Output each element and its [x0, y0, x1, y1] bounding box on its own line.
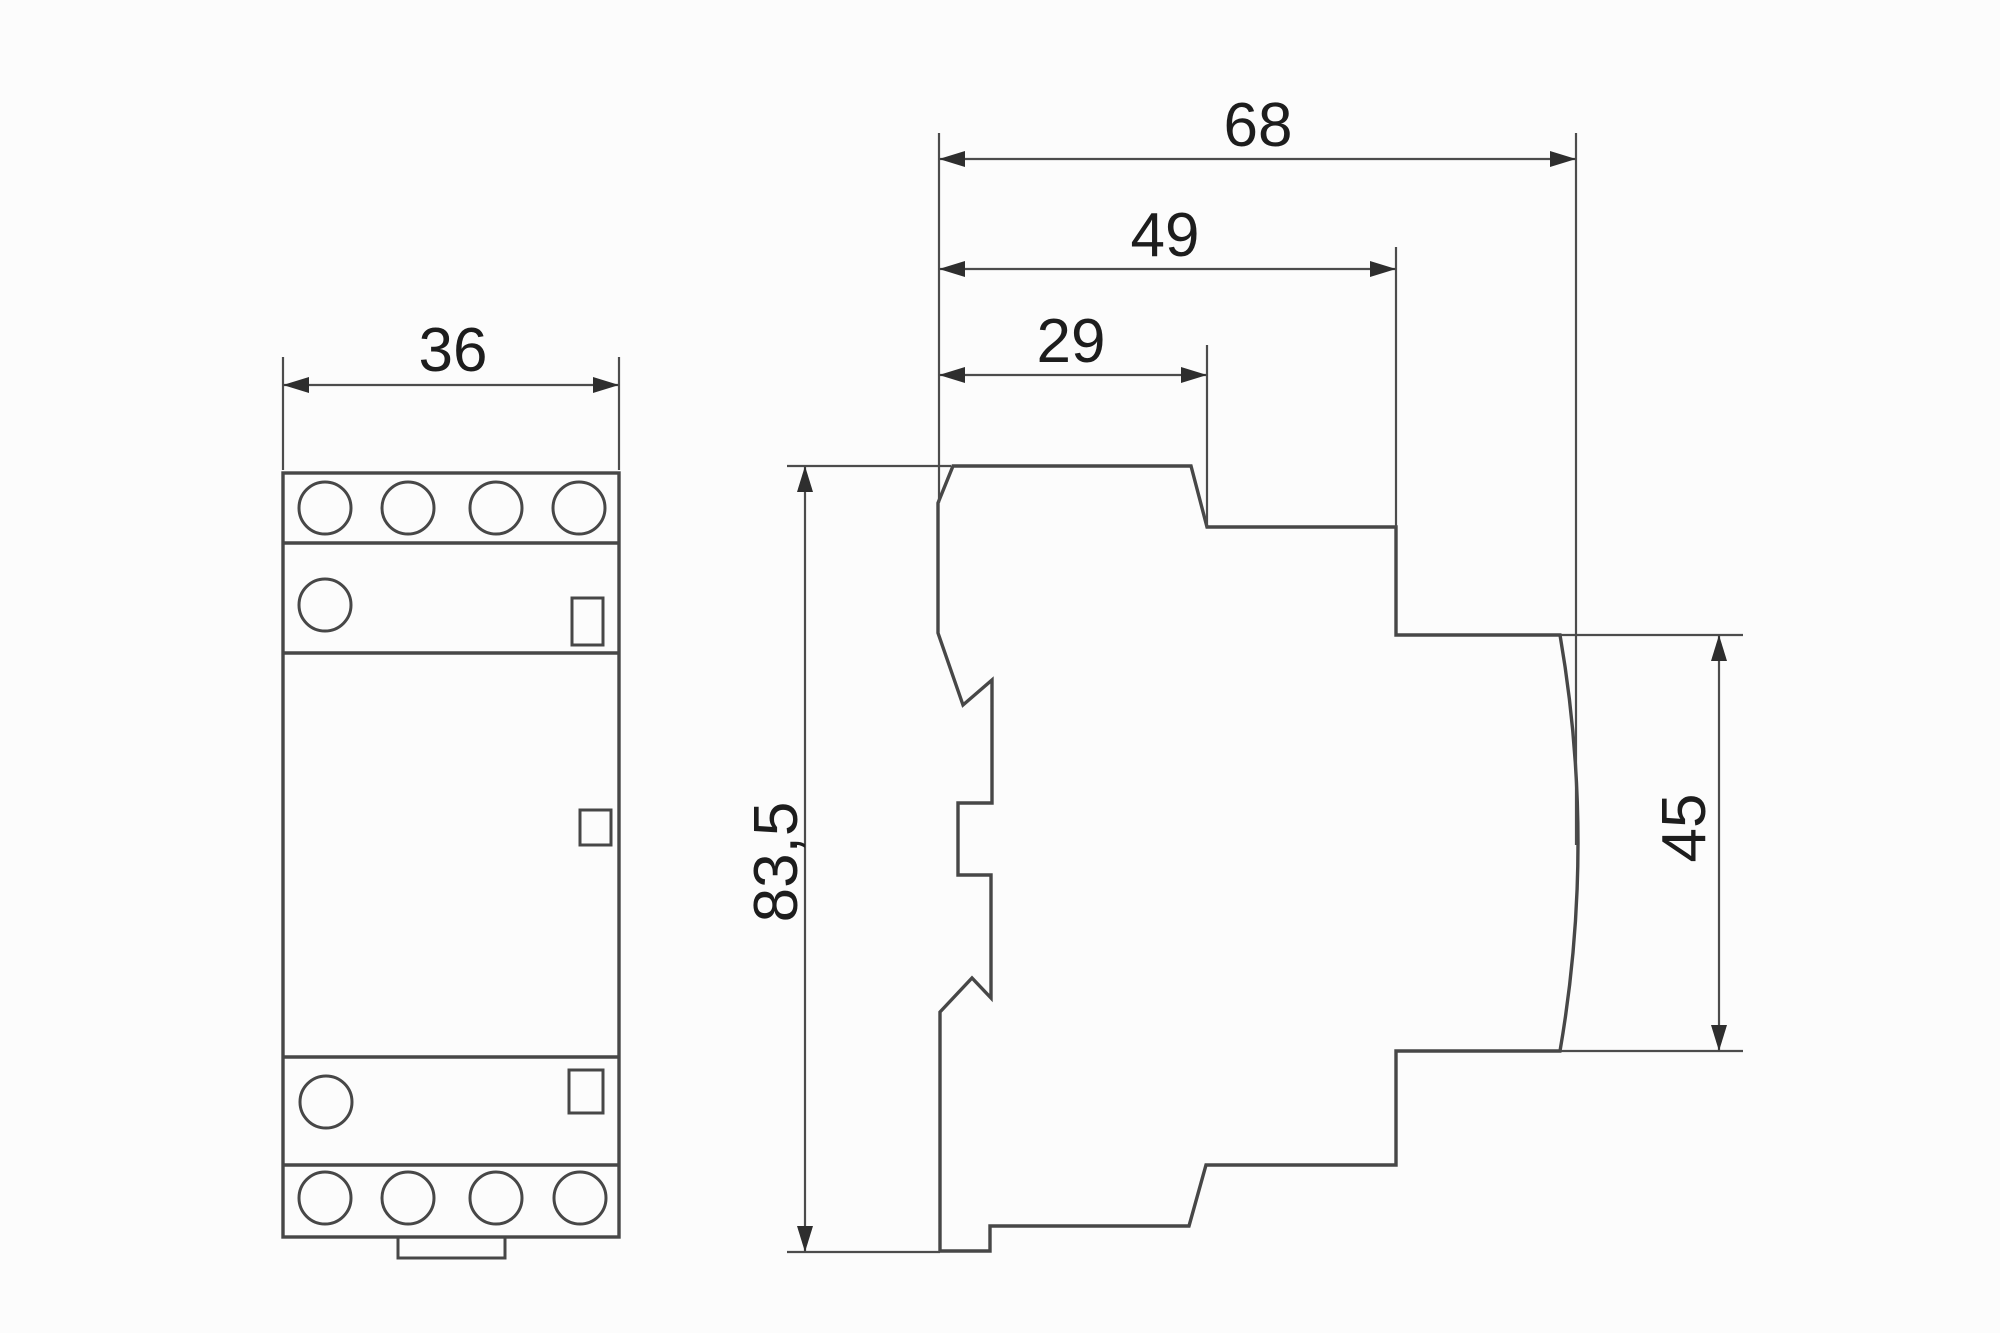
indicator-window-rect: [572, 598, 603, 645]
dimension-total-depth: 68: [939, 91, 1576, 845]
dimension-front-width: 36: [283, 316, 619, 470]
dim-mid-depth-label: 49: [1131, 201, 1200, 270]
arrowhead-up: [797, 466, 813, 492]
dim-top-depth-label: 29: [1037, 307, 1106, 376]
arrowhead-left: [939, 261, 965, 277]
drawing-canvas: 36 68 49 29: [0, 0, 2000, 1333]
dim-total-depth-label: 68: [1224, 91, 1293, 160]
front-view: 36: [283, 316, 619, 1258]
arrowhead-right: [1181, 367, 1207, 383]
dim-front-width-label: 36: [419, 316, 488, 385]
arrowhead-left: [939, 151, 965, 167]
side-profile-outline: [938, 466, 1578, 1251]
terminal-screw-circle: [382, 1172, 434, 1224]
terminal-screw-circle: [299, 1172, 351, 1224]
arrowhead-right: [593, 377, 619, 393]
terminal-screw-circle: [554, 1172, 606, 1224]
coil-terminal-circle: [299, 579, 351, 631]
indicator-window-rect: [580, 810, 611, 845]
terminal-screw-circle: [553, 482, 605, 534]
dimension-mid-depth: 49: [939, 201, 1396, 527]
coil-terminal-circle: [300, 1076, 352, 1128]
arrowhead-right: [1370, 261, 1396, 277]
dim-front-face-height-label: 45: [1650, 794, 1719, 863]
dimension-front-face-height: 45: [1560, 635, 1743, 1051]
dim-height-label: 83,5: [742, 802, 811, 923]
arrowhead-left: [283, 377, 309, 393]
front-body-outline: [283, 473, 619, 1237]
dimension-height: 83,5: [742, 466, 951, 1252]
arrowhead-down: [797, 1226, 813, 1252]
indicator-window-rect: [569, 1070, 603, 1113]
arrowhead-left: [939, 367, 965, 383]
arrowhead-down: [1711, 1025, 1727, 1051]
terminal-screw-circle: [470, 1172, 522, 1224]
arrowhead-up: [1711, 635, 1727, 661]
dimension-drawing: 36 68 49 29: [0, 0, 2000, 1333]
dimension-top-depth: 29: [939, 307, 1207, 527]
terminal-screw-circle: [299, 482, 351, 534]
arrowhead-right: [1550, 151, 1576, 167]
terminal-screw-circle: [470, 482, 522, 534]
din-clip-tab: [398, 1237, 505, 1258]
terminal-screw-circle: [382, 482, 434, 534]
side-view: 68 49 29 83,5: [742, 91, 1743, 1252]
